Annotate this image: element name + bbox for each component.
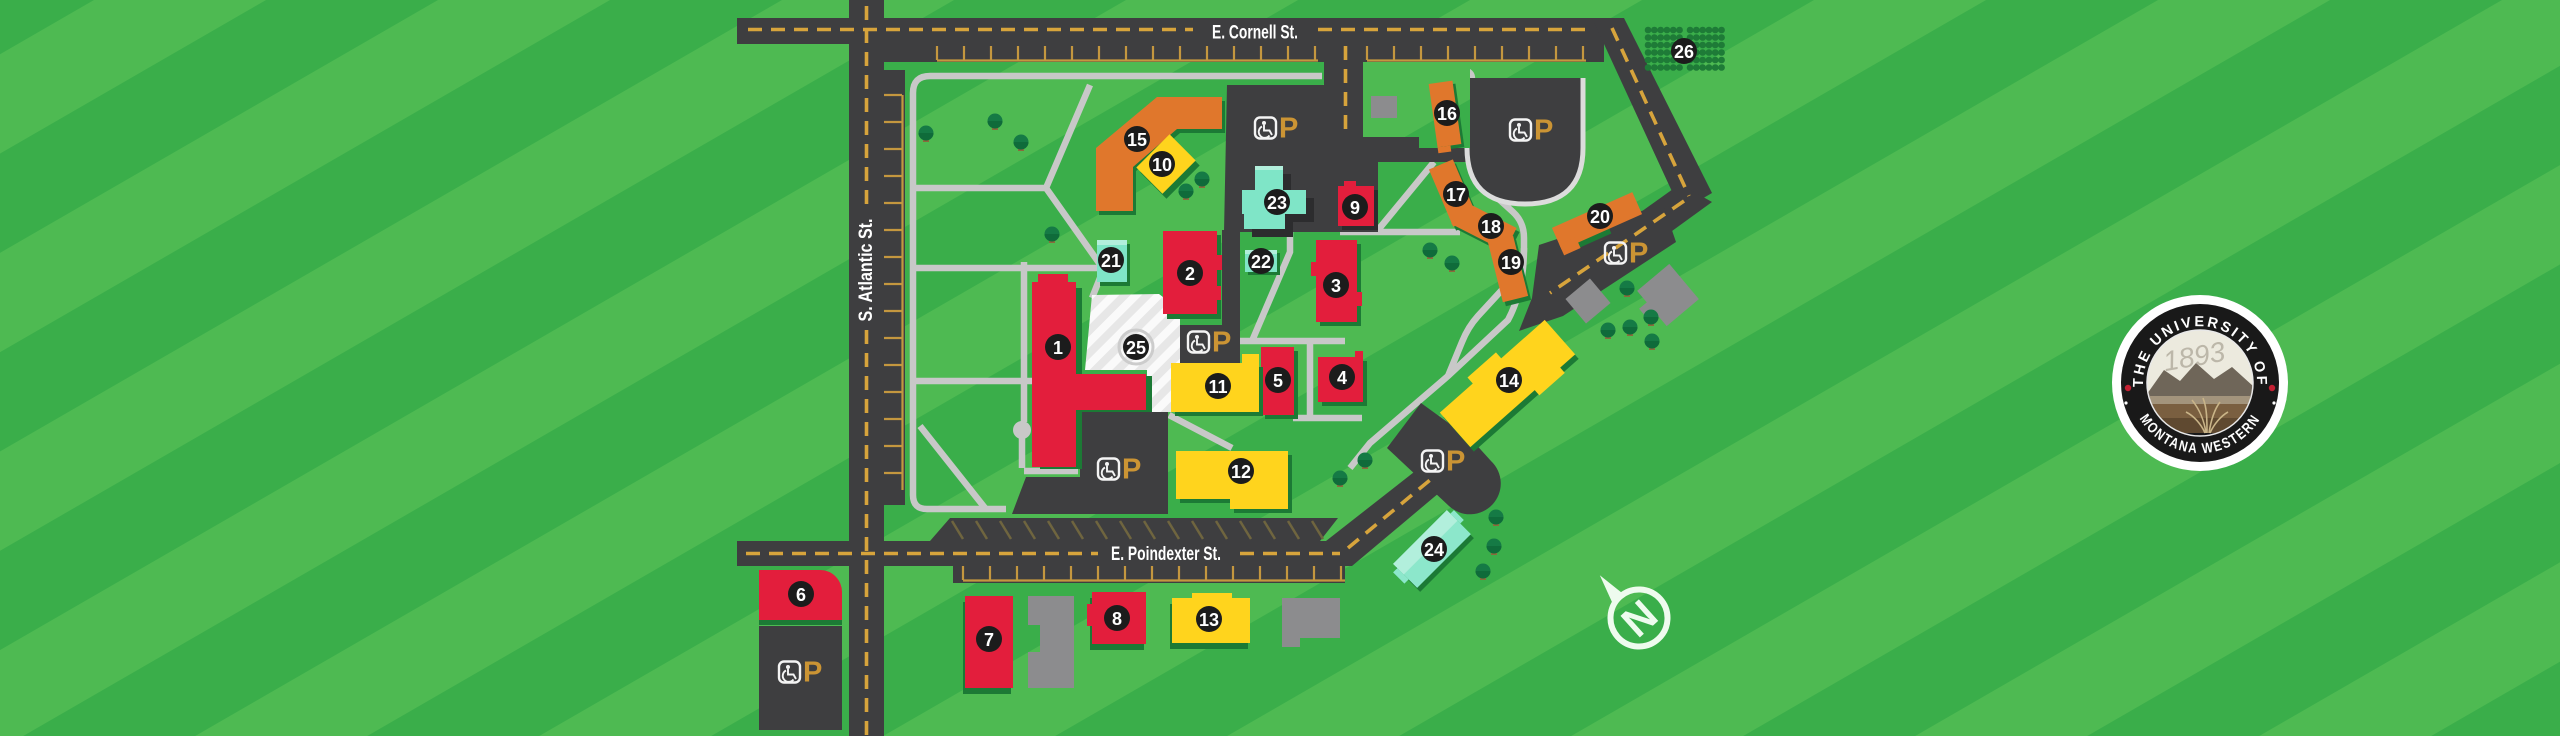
svg-text:17: 17 — [1446, 185, 1466, 205]
svg-text:26: 26 — [1674, 42, 1694, 62]
svg-text:9: 9 — [1350, 198, 1360, 218]
svg-text:19: 19 — [1501, 253, 1521, 273]
svg-text:7: 7 — [984, 630, 994, 650]
svg-text:15: 15 — [1127, 130, 1147, 150]
svg-text:10: 10 — [1152, 155, 1172, 175]
svg-text:E. Cornell St.: E. Cornell St. — [1212, 23, 1298, 44]
svg-text:2: 2 — [1185, 264, 1195, 284]
svg-text:6: 6 — [796, 585, 806, 605]
svg-text:22: 22 — [1251, 252, 1271, 272]
svg-text:23: 23 — [1267, 193, 1287, 213]
svg-text:14: 14 — [1499, 371, 1519, 391]
svg-text:12: 12 — [1231, 462, 1251, 482]
svg-text:E. Poindexter St.: E. Poindexter St. — [1111, 544, 1221, 565]
svg-text:5: 5 — [1273, 371, 1283, 391]
svg-text:11: 11 — [1208, 377, 1227, 397]
svg-text:8: 8 — [1112, 609, 1122, 629]
svg-text:16: 16 — [1437, 104, 1457, 124]
svg-text:4: 4 — [1337, 368, 1347, 388]
svg-text:21: 21 — [1101, 251, 1121, 271]
svg-text:13: 13 — [1199, 610, 1219, 630]
svg-text:S. Atlantic St.: S. Atlantic St. — [856, 219, 877, 322]
svg-text:1: 1 — [1053, 338, 1063, 358]
svg-text:20: 20 — [1590, 207, 1610, 227]
svg-text:3: 3 — [1331, 276, 1341, 296]
svg-text:18: 18 — [1481, 217, 1501, 237]
svg-text:24: 24 — [1424, 540, 1444, 560]
svg-text:25: 25 — [1126, 338, 1146, 358]
